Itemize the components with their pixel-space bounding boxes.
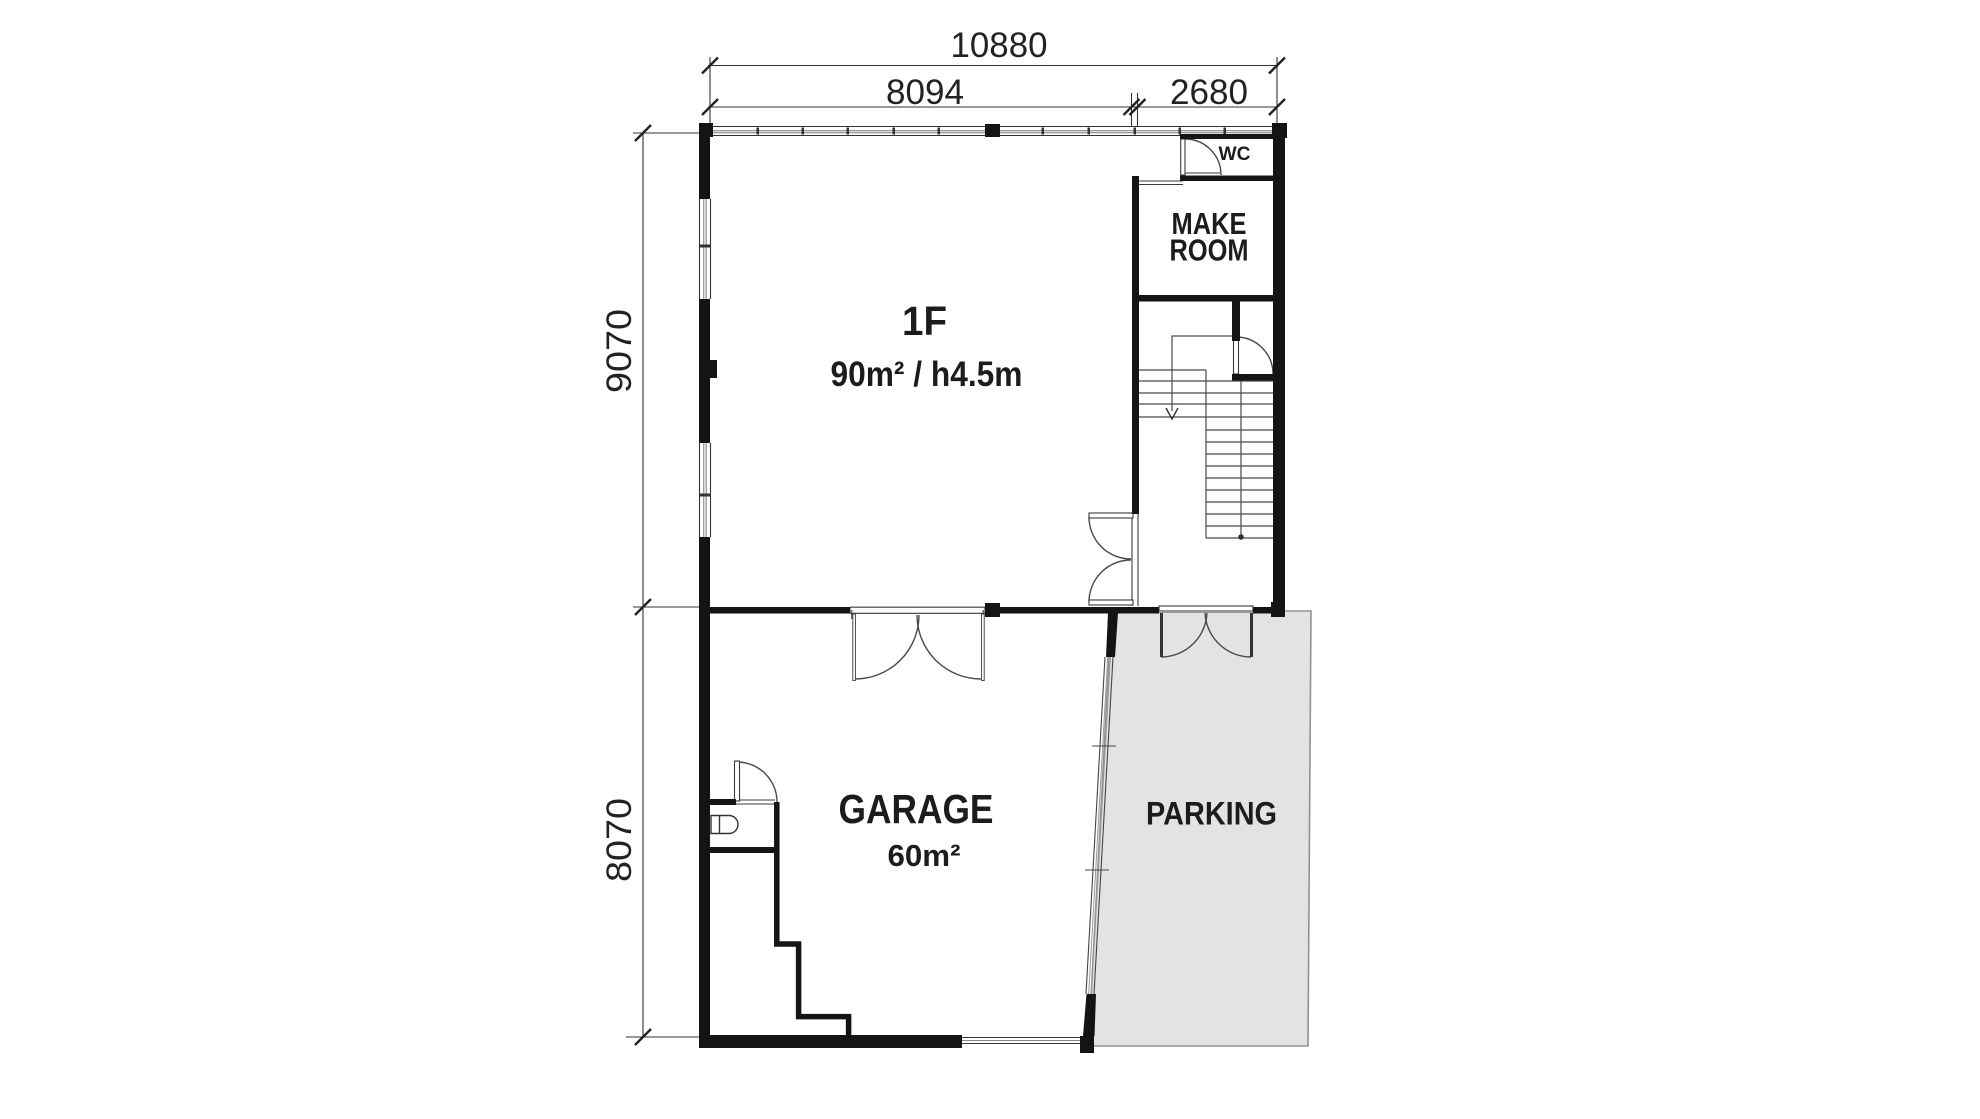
svg-text:8094: 8094 <box>886 73 964 112</box>
svg-text:60m²: 60m² <box>888 838 961 873</box>
svg-text:1F: 1F <box>902 298 947 344</box>
svg-text:2680: 2680 <box>1170 73 1248 112</box>
svg-text:10880: 10880 <box>951 26 1048 65</box>
svg-text:8070: 8070 <box>600 798 639 882</box>
svg-text:GARAGE: GARAGE <box>839 786 994 832</box>
svg-text:WC: WC <box>1219 144 1251 165</box>
svg-text:90m² / h4.5m: 90m² / h4.5m <box>831 355 1023 394</box>
svg-text:PARKING: PARKING <box>1146 796 1277 832</box>
svg-text:9070: 9070 <box>600 309 639 393</box>
svg-text:ROOM: ROOM <box>1170 233 1249 268</box>
